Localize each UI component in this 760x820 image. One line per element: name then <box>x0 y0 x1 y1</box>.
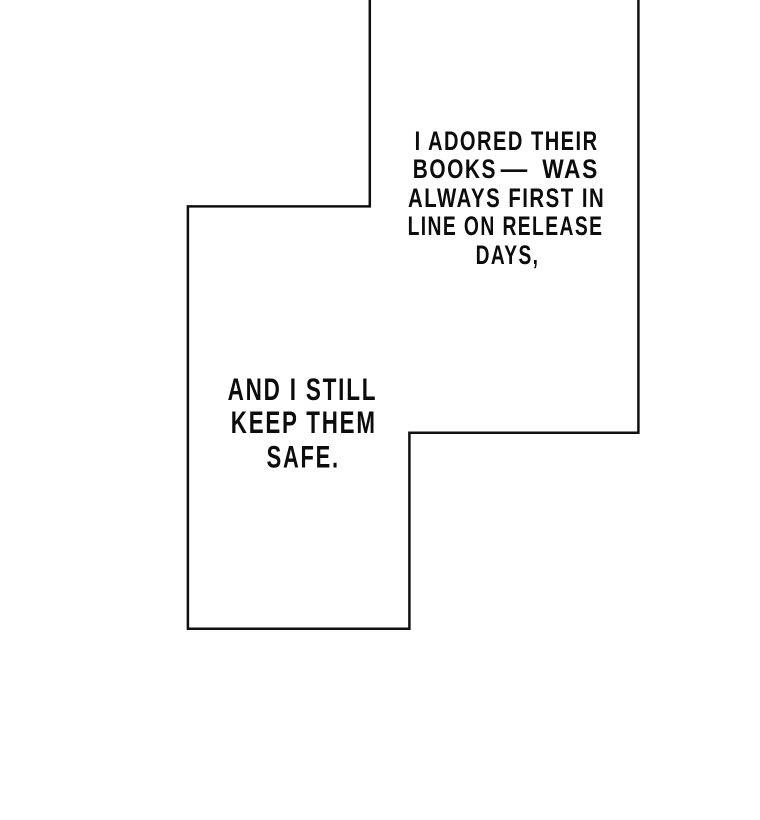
svg-text:WAS: WAS <box>542 153 599 184</box>
svg-text:AND I STILL: AND I STILL <box>228 372 378 407</box>
svg-text:SAFE.: SAFE. <box>267 440 340 475</box>
svg-text:DAYS,: DAYS, <box>476 239 540 270</box>
svg-text:LINE ON RELEASE: LINE ON RELEASE <box>408 210 604 241</box>
svg-text:BOOKS: BOOKS <box>413 153 497 184</box>
svg-text:KEEP THEM: KEEP THEM <box>231 405 377 440</box>
svg-text:ALWAYS FIRST IN: ALWAYS FIRST IN <box>408 182 605 213</box>
svg-text:—: — <box>501 153 530 184</box>
svg-text:I ADORED THEIR: I ADORED THEIR <box>415 125 599 156</box>
